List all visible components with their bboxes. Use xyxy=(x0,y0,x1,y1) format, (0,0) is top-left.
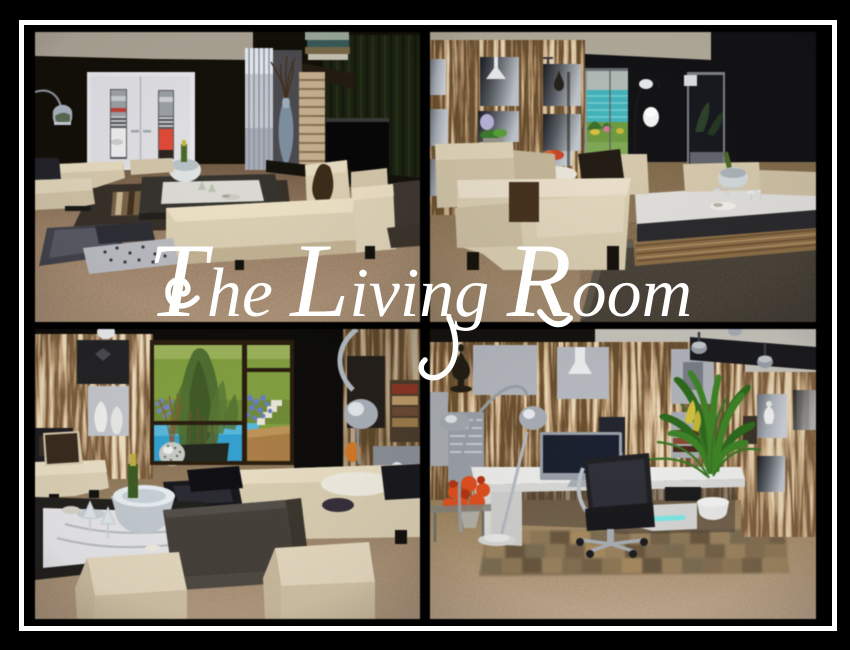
svg-text:The Living Room: The Living Room xyxy=(148,222,692,339)
